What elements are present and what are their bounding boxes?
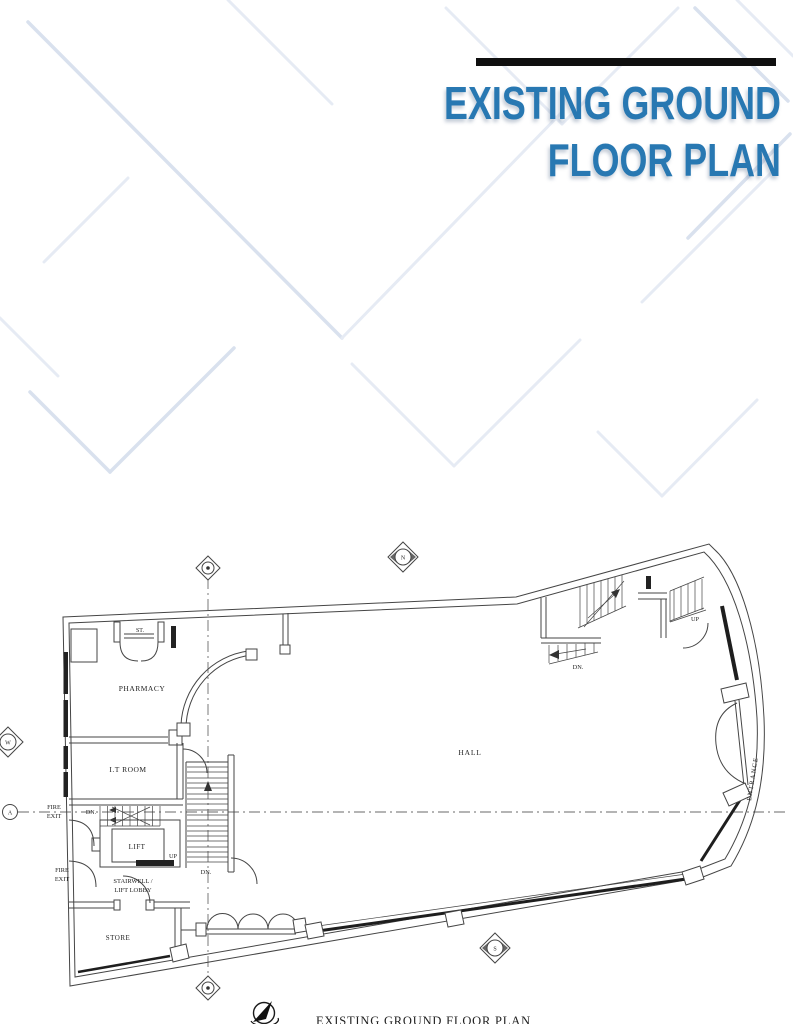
compass-south: S [480, 933, 510, 963]
dn-label-topright: DN. [573, 664, 584, 671]
bottom-glazing [181, 866, 704, 939]
plan-labels: ST. PHARMACY I.T ROOM HALL LIFT STAIRWEL… [47, 616, 760, 942]
entrance [716, 683, 751, 806]
store-label: STORE [106, 934, 131, 942]
it-room-label: I.T ROOM [109, 765, 146, 774]
compass-west-label: W [5, 741, 11, 747]
main-staircase [186, 755, 234, 872]
stairwell-label-2: LIFT LOBBY [114, 887, 152, 894]
title-block: EXISTING GROUND FLOOR PLAN [349, 58, 781, 189]
compass-north-label: N [401, 556, 406, 562]
pharmacy-label: PHARMACY [119, 684, 166, 693]
curved-wall [177, 613, 290, 736]
top-right-stairs [541, 575, 708, 664]
dn-label-main: DN. [201, 869, 212, 876]
fire-exit-1-line2: EXIT [47, 813, 61, 820]
entrance-label: ENTRANCE [746, 756, 760, 801]
st-label: ST. [136, 628, 145, 634]
small-stairs [100, 806, 160, 826]
page-title-line2: FLOOR PLAN [444, 132, 781, 189]
caption-title: EXISTING GROUND FLOOR PLAN [316, 1014, 531, 1024]
hall-label: HALL [458, 748, 481, 757]
fire-exit-1-line1: FIRE [47, 804, 61, 811]
grid-row-label: A [8, 811, 13, 817]
up-label-topright: UP [691, 616, 700, 623]
dn-label-small-stairs: DN. [86, 810, 97, 816]
caption-row: EXISTING GROUND FLOOR PLAN [251, 1001, 531, 1024]
page: EXISTING GROUND FLOOR PLAN [0, 0, 793, 1024]
fire-exit-2-line1: FIRE [55, 867, 69, 874]
title-rule [476, 58, 776, 66]
outer-walls [63, 544, 764, 986]
page-title-line1: EXISTING GROUND [444, 75, 781, 132]
compass-south-label: S [493, 947, 496, 953]
north-arrow-icon [251, 1001, 278, 1024]
stair-up-arrow [204, 781, 212, 791]
fire-exit-2-line2: EXIT [55, 876, 69, 883]
lift-label: LIFT [129, 843, 146, 851]
compass-west: W [0, 727, 23, 757]
up-label-main: UP [169, 853, 178, 860]
compass-north: N [388, 542, 418, 572]
stairwell-label-1: STAIRWELL / [113, 878, 152, 885]
